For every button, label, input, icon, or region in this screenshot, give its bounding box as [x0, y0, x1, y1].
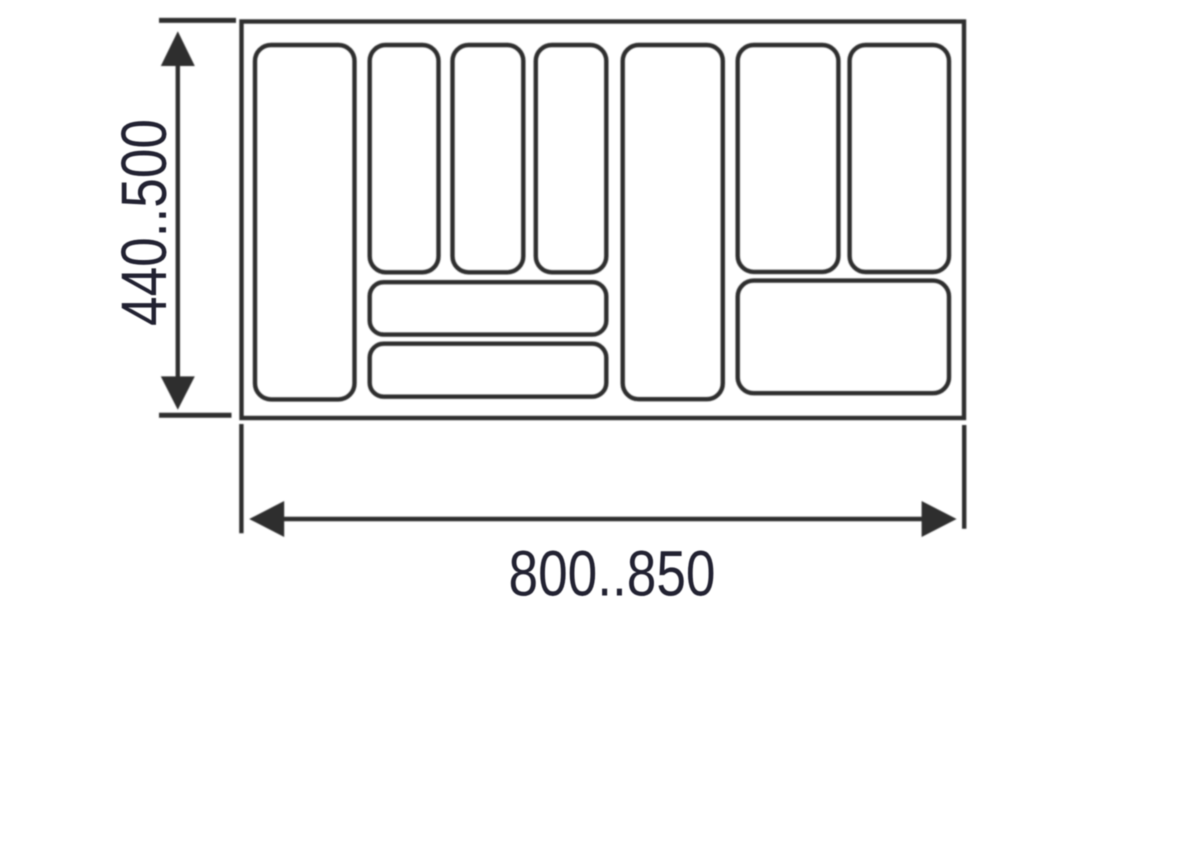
svg-text:800..850: 800..850 [509, 538, 716, 610]
svg-text:440..500: 440..500 [108, 119, 180, 326]
